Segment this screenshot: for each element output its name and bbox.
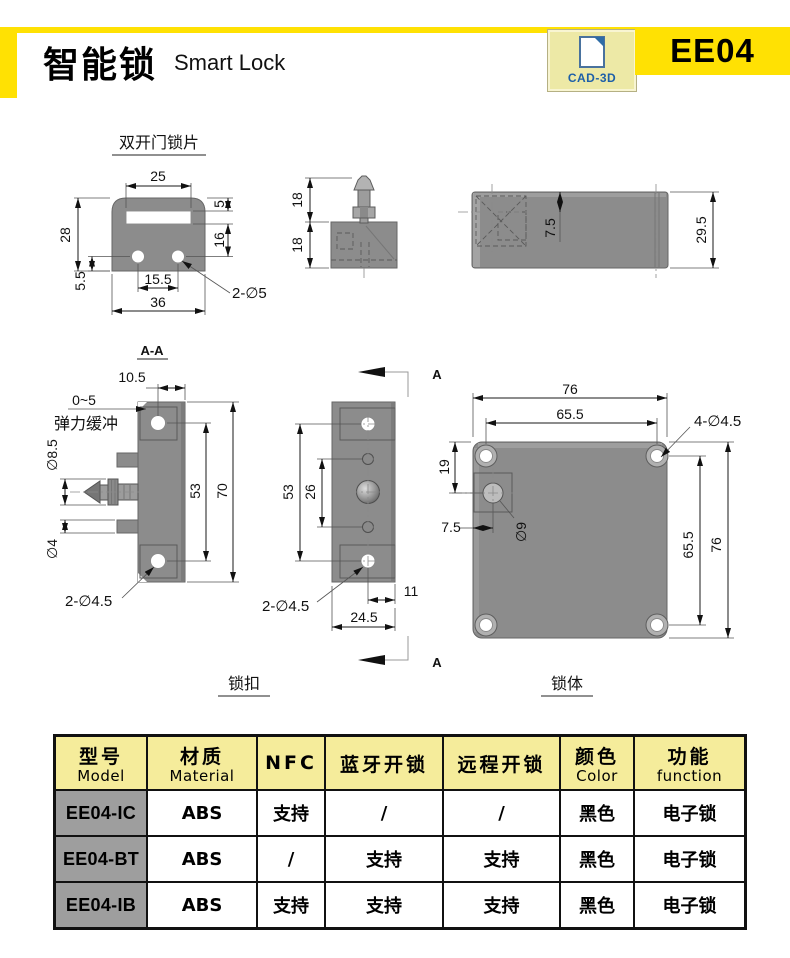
table-cell-model: EE04-BT (56, 837, 146, 881)
table-cell: 黑色 (561, 791, 633, 835)
table-cell-model: EE04-IC (56, 791, 146, 835)
pin-block-shape (331, 222, 397, 268)
col-header-function: 功能 function (635, 737, 744, 789)
body-front-view: 76 65.5 4-∅4.5 19 7.5 ∅9 65.5 76 锁体 (436, 381, 741, 696)
section-letter-top: A (432, 367, 442, 382)
buffer-range: 0~5 (72, 392, 96, 408)
plate-view-title: 双开门锁片 (119, 133, 199, 152)
latch-front-view: A 53 26 11 24.5 (218, 367, 442, 696)
col-header-nfc: NFC (258, 737, 324, 789)
dim-plate-height: 28 (57, 227, 73, 243)
table-cell: 黑色 (561, 883, 633, 927)
body-holes-note: 4-∅4.5 (694, 413, 741, 430)
section-holes-note: 2-∅4.5 (65, 593, 112, 610)
table-cell: ABS (148, 791, 256, 835)
dim-thickness: 29.5 (693, 216, 709, 243)
table-cell: 支持 (258, 883, 324, 927)
datasheet-page: 智能锁 Smart Lock CAD-3D EE04 双开门锁片 (0, 0, 790, 958)
plate-holes-note: 2-∅5 (232, 285, 267, 302)
plate-shape (112, 198, 205, 271)
dim-section-hole-spacing: 53 (187, 483, 203, 499)
dim-top-width: 10.5 (118, 369, 145, 385)
dim-hole-top: 19 (436, 459, 452, 475)
dim-pin-diameter: ∅8.5 (44, 439, 60, 471)
table-cell: 支持 (326, 883, 442, 927)
peg-bottom (117, 520, 138, 533)
section-letter-bottom: A (432, 655, 442, 670)
dim-section-height: 70 (214, 483, 230, 499)
dim-slot-top-offset: 5 (211, 200, 227, 208)
pin-side-view: 18 18 (289, 176, 397, 280)
dim-latch-hole-spacing: 53 (280, 484, 296, 500)
table-cell: 电子锁 (635, 837, 744, 881)
latch-label: 锁扣 (228, 674, 260, 693)
peg-top (117, 453, 138, 467)
dim-total-width: 36 (150, 294, 166, 310)
dim-slot-width: 25 (150, 168, 166, 184)
section-hole-bottom (151, 554, 166, 569)
dim-pin-height: 18 (289, 192, 305, 208)
table-cell: 电子锁 (635, 791, 744, 835)
table-cell: ABS (148, 883, 256, 927)
table-cell: 支持 (326, 837, 442, 881)
dim-center-hole-diameter: ∅9 (513, 522, 529, 542)
table-cell: / (258, 837, 324, 881)
col-header-material: 材质 Material (148, 737, 256, 789)
body-front-shape (473, 442, 667, 638)
dim-latch-inner-spacing: 26 (302, 484, 318, 500)
table-cell-model: EE04-IB (56, 883, 146, 927)
pin-tip (354, 176, 374, 190)
plate-view: 双开门锁片 25 28 5 16 5.5 15.5 (57, 133, 267, 315)
dim-hole-offset: 7.5 (542, 218, 558, 238)
plate-hole-left (132, 250, 145, 263)
section-view: A-A 10.5 0~5 弹 (44, 343, 239, 610)
table-cell: ABS (148, 837, 256, 881)
dim-hole-to-edge: 11 (404, 583, 419, 599)
dim-body-hole-spacing-v: 65.5 (680, 531, 696, 558)
table-cell: / (326, 791, 442, 835)
body-side-shape (472, 192, 668, 268)
dim-hole-left: 7.5 (441, 519, 461, 535)
table-cell: 支持 (258, 791, 324, 835)
table-cell: / (444, 791, 559, 835)
table-cell: 黑色 (561, 837, 633, 881)
section-arrow-bottom (358, 655, 385, 665)
dim-body-hole-spacing-h: 65.5 (556, 406, 583, 422)
dim-slot-to-hole: 16 (211, 232, 227, 248)
section-arrow-top (358, 367, 385, 377)
section-title: A-A (140, 343, 164, 358)
col-header-model: 型号 Model (56, 737, 146, 789)
table-cell: 支持 (444, 883, 559, 927)
section-hole-top (151, 416, 166, 431)
body-label: 锁体 (551, 674, 583, 693)
dim-hole-to-bottom: 5.5 (72, 271, 88, 291)
spec-table: 型号 Model 材质 Material NFC 蓝牙开锁 远程开锁 颜色 Co… (53, 734, 747, 930)
dim-body-height: 76 (708, 537, 724, 553)
col-header-color: 颜色 Color (561, 737, 633, 789)
dim-body-width: 76 (562, 381, 578, 397)
table-cell: 电子锁 (635, 883, 744, 927)
latch-holes-note: 2-∅4.5 (262, 598, 309, 615)
dim-latch-width: 24.5 (350, 609, 377, 625)
table-cell: 支持 (444, 837, 559, 881)
col-header-bluetooth-unlock: 蓝牙开锁 (326, 737, 442, 789)
col-header-remote-unlock: 远程开锁 (444, 737, 559, 789)
body-side-view: 7.5 29.5 (458, 184, 719, 278)
plate-slot (126, 211, 191, 224)
dim-hole-spacing: 15.5 (144, 271, 171, 287)
buffer-label: 弹力缓冲 (54, 414, 118, 433)
dim-body-height: 18 (289, 237, 305, 253)
dim-peg-diameter: ∅4 (44, 539, 60, 559)
